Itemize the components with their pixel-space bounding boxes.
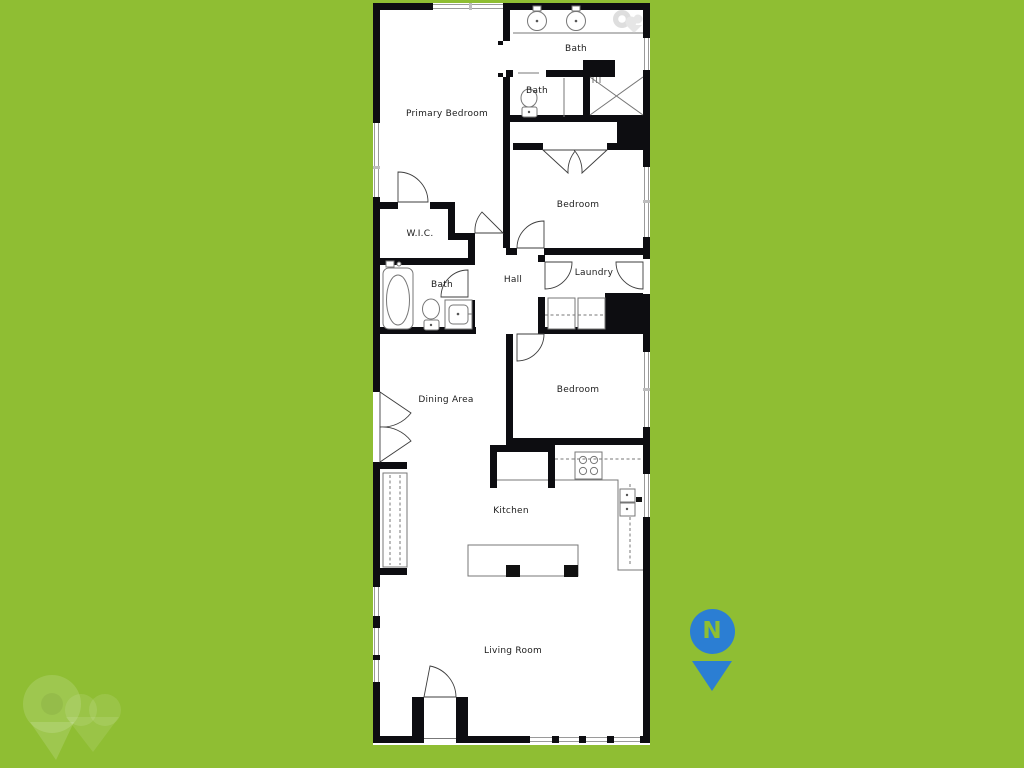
room-label-dining-area: Dining Area bbox=[418, 395, 473, 405]
door-hall-primary bbox=[475, 212, 503, 233]
floor-plan-page: Primary Bedroom Bath Bath Bedroom W.I.C.… bbox=[0, 0, 1024, 768]
compass-arrow-icon bbox=[692, 661, 732, 691]
windows-left-living-room bbox=[373, 587, 380, 682]
window-right-bedroom-upper bbox=[643, 167, 650, 237]
room-label-laundry: Laundry bbox=[575, 268, 613, 278]
interior-walls bbox=[376, 3, 650, 575]
small-bath-fixtures bbox=[521, 78, 564, 117]
room-label-hall: Hall bbox=[504, 275, 522, 285]
watermark-logo bbox=[0, 660, 130, 768]
windows-bottom-living-room bbox=[530, 736, 640, 743]
laundry-fixtures bbox=[545, 298, 605, 329]
floor-plan: Primary Bedroom Bath Bath Bedroom W.I.C.… bbox=[373, 3, 650, 745]
stool-icon bbox=[506, 565, 520, 577]
toilet-icon bbox=[423, 299, 440, 330]
shower-icon bbox=[590, 77, 643, 115]
room-label-living-room: Living Room bbox=[484, 646, 542, 656]
door-laundry-exterior bbox=[616, 262, 643, 289]
window-top bbox=[433, 3, 510, 10]
compass-north-label: N bbox=[702, 620, 721, 643]
window-left-primary-bedroom bbox=[373, 123, 380, 197]
washer-icon bbox=[548, 298, 575, 329]
compass-circle: N bbox=[690, 609, 735, 654]
room-label-bath-ensuite: Bath bbox=[565, 44, 587, 54]
dryer-icon bbox=[578, 298, 605, 329]
pantry-cabinet bbox=[383, 473, 407, 567]
kitchen-island bbox=[468, 545, 578, 577]
vanity-sink-icon bbox=[445, 300, 472, 329]
window-right-bath bbox=[643, 38, 650, 70]
watermark-logo-small bbox=[613, 10, 643, 33]
room-label-bedroom-upper: Bedroom bbox=[557, 200, 599, 210]
heart-icon bbox=[65, 694, 121, 752]
room-label-kitchen: Kitchen bbox=[493, 506, 529, 516]
room-label-bath-small: Bath bbox=[526, 86, 548, 96]
door-closet-left bbox=[543, 150, 576, 173]
window-right-kitchen bbox=[643, 474, 650, 517]
door-laundry bbox=[545, 262, 572, 289]
door-entry bbox=[424, 666, 456, 697]
stove-icon bbox=[575, 452, 602, 479]
door-french-bottom bbox=[380, 427, 411, 462]
compass: N bbox=[688, 609, 736, 691]
window-right-bedroom-lower bbox=[643, 352, 650, 427]
room-label-bedroom-lower: Bedroom bbox=[557, 385, 599, 395]
room-label-wic: W.I.C. bbox=[407, 229, 434, 239]
door-bedroom-lower bbox=[517, 334, 544, 361]
door-closet-right bbox=[574, 150, 607, 173]
room-label-bath-hall: Bath bbox=[431, 280, 453, 290]
door-wic bbox=[398, 172, 428, 202]
bathtub-icon bbox=[383, 261, 413, 329]
door-bedroom-upper bbox=[517, 221, 544, 248]
room-label-primary-bedroom: Primary Bedroom bbox=[406, 109, 488, 119]
door-french-top bbox=[380, 392, 411, 427]
stool-icon bbox=[564, 565, 578, 577]
kitchen-sink-icon bbox=[620, 489, 642, 516]
